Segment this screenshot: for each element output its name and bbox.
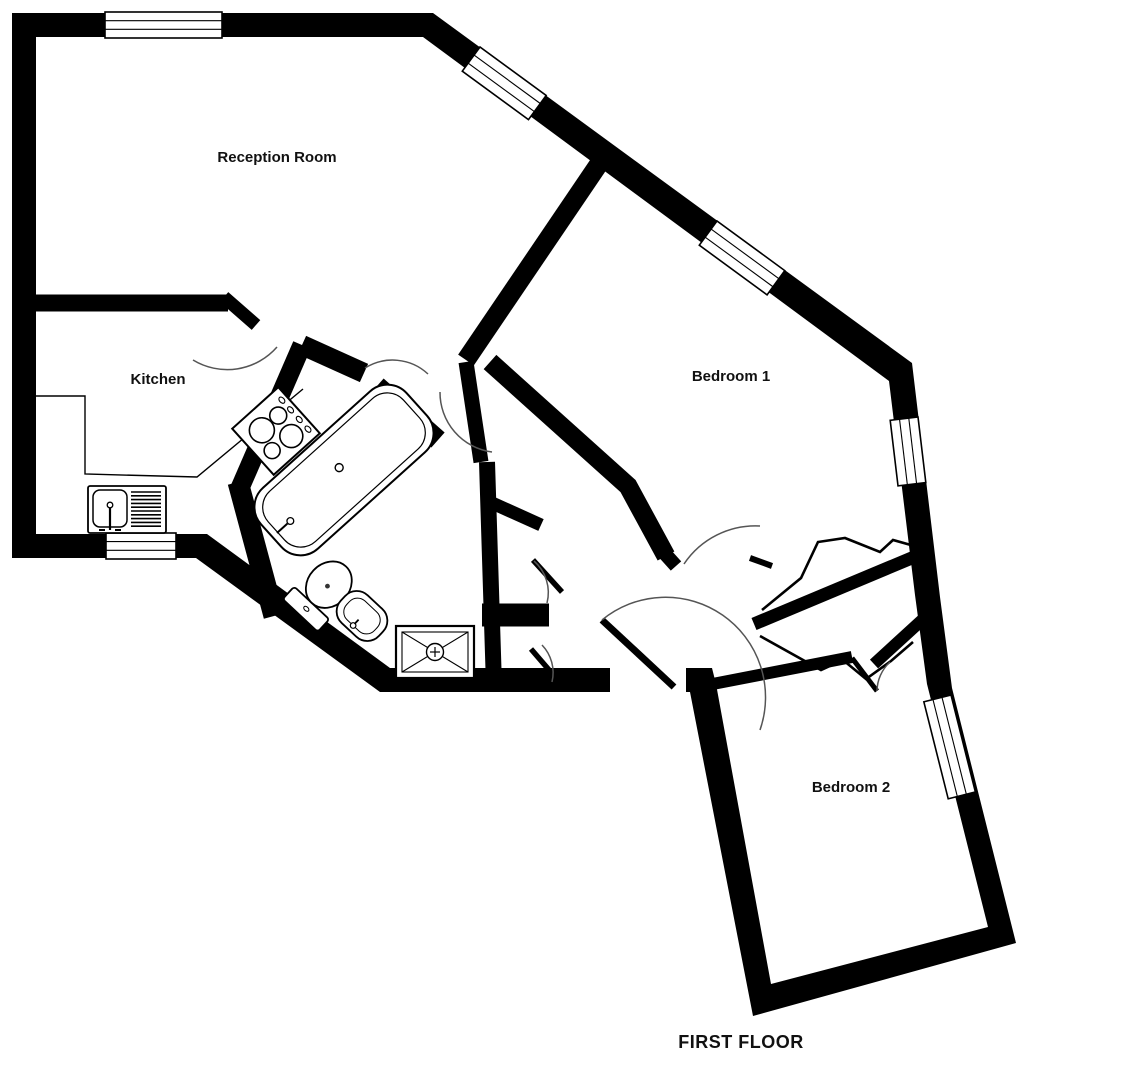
- kitchen-sink-drainer: [88, 486, 166, 533]
- floor-plan-canvas: Reception Room Kitchen Bedroom 1 Bedroom…: [0, 0, 1124, 1072]
- wall-cupboard-bottom-jamb: [528, 676, 550, 692]
- wall-cupboard-left: [487, 462, 494, 686]
- floor-title: FIRST FLOOR: [678, 1032, 804, 1052]
- room-label-reception: Reception Room: [217, 149, 336, 166]
- room-label-kitchen: Kitchen: [130, 371, 185, 388]
- window-reception-top: [105, 12, 222, 38]
- window-kitchen-bottom: [106, 533, 176, 559]
- shower-tray: [396, 626, 474, 678]
- room-label-bedroom2: Bedroom 2: [812, 779, 890, 796]
- room-label-bedroom1: Bedroom 1: [692, 368, 770, 385]
- floor-plan-page: Reception Room Kitchen Bedroom 1 Bedroom…: [0, 0, 1124, 1072]
